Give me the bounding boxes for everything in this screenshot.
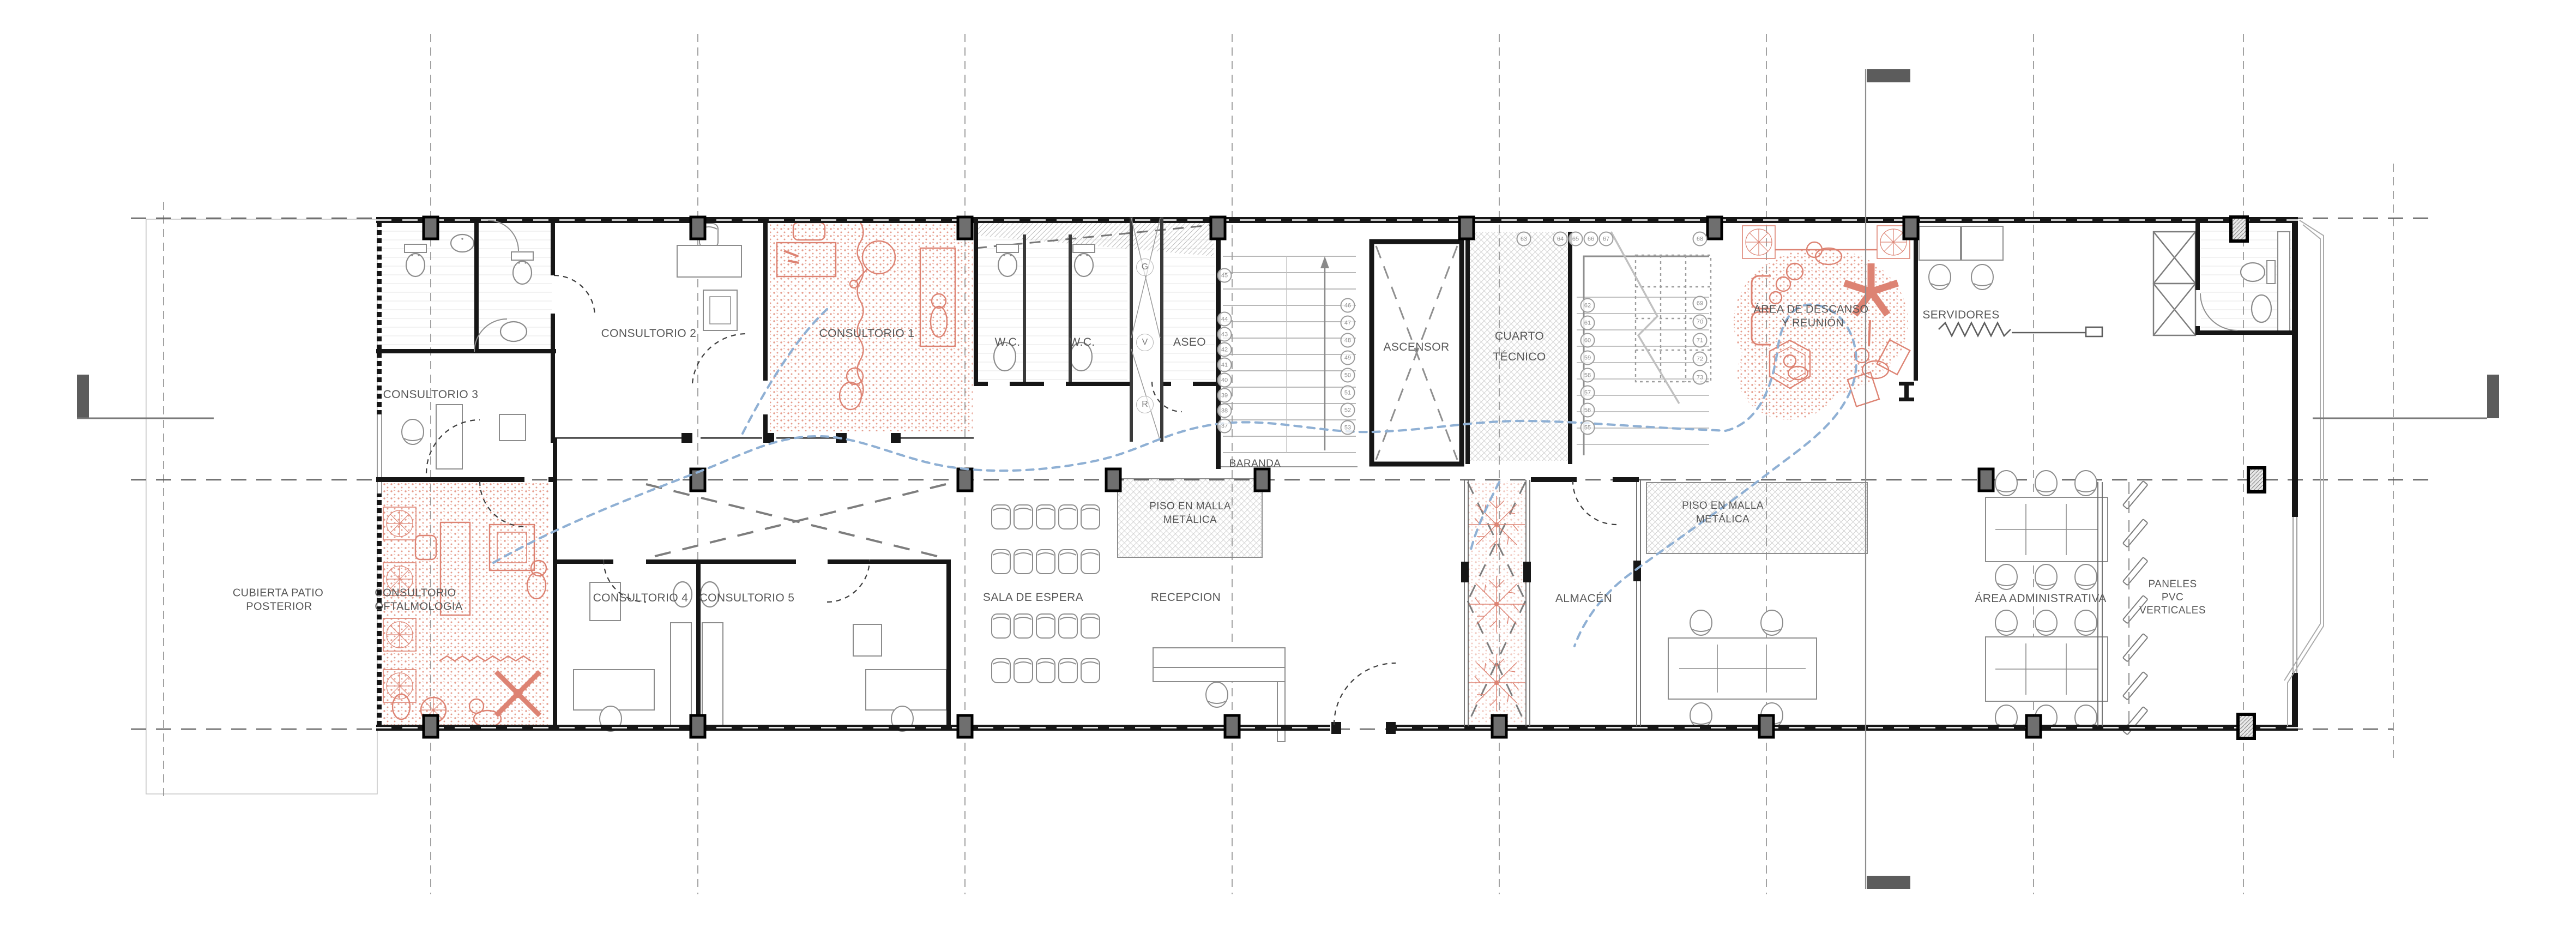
waiting-chairs bbox=[992, 505, 1100, 683]
steel-column-ibeam bbox=[1899, 382, 1914, 401]
servidores-zigzag bbox=[1939, 323, 2102, 336]
floor-plan: CONSULTORIO 2CONSULTORIO 1W.C.W.C.ASEOBA… bbox=[0, 0, 2576, 951]
stair-2 bbox=[1577, 232, 1711, 455]
cuarto-tecnico-hatch bbox=[1470, 232, 1568, 461]
double-height-void bbox=[646, 484, 946, 558]
pvc-slats bbox=[2123, 481, 2148, 735]
plan-drawing bbox=[0, 0, 2576, 951]
stair-break-line bbox=[1611, 232, 1679, 404]
furniture bbox=[402, 224, 2290, 742]
piso-malla-right-hatch bbox=[1646, 483, 1867, 553]
cubierta-patio-posterior-outline bbox=[146, 219, 377, 794]
grid-lines bbox=[131, 34, 2432, 894]
consultorio-1-stipple bbox=[770, 221, 973, 431]
piso-malla-left-hatch bbox=[1118, 479, 1262, 557]
stair-1 bbox=[1217, 256, 1358, 467]
